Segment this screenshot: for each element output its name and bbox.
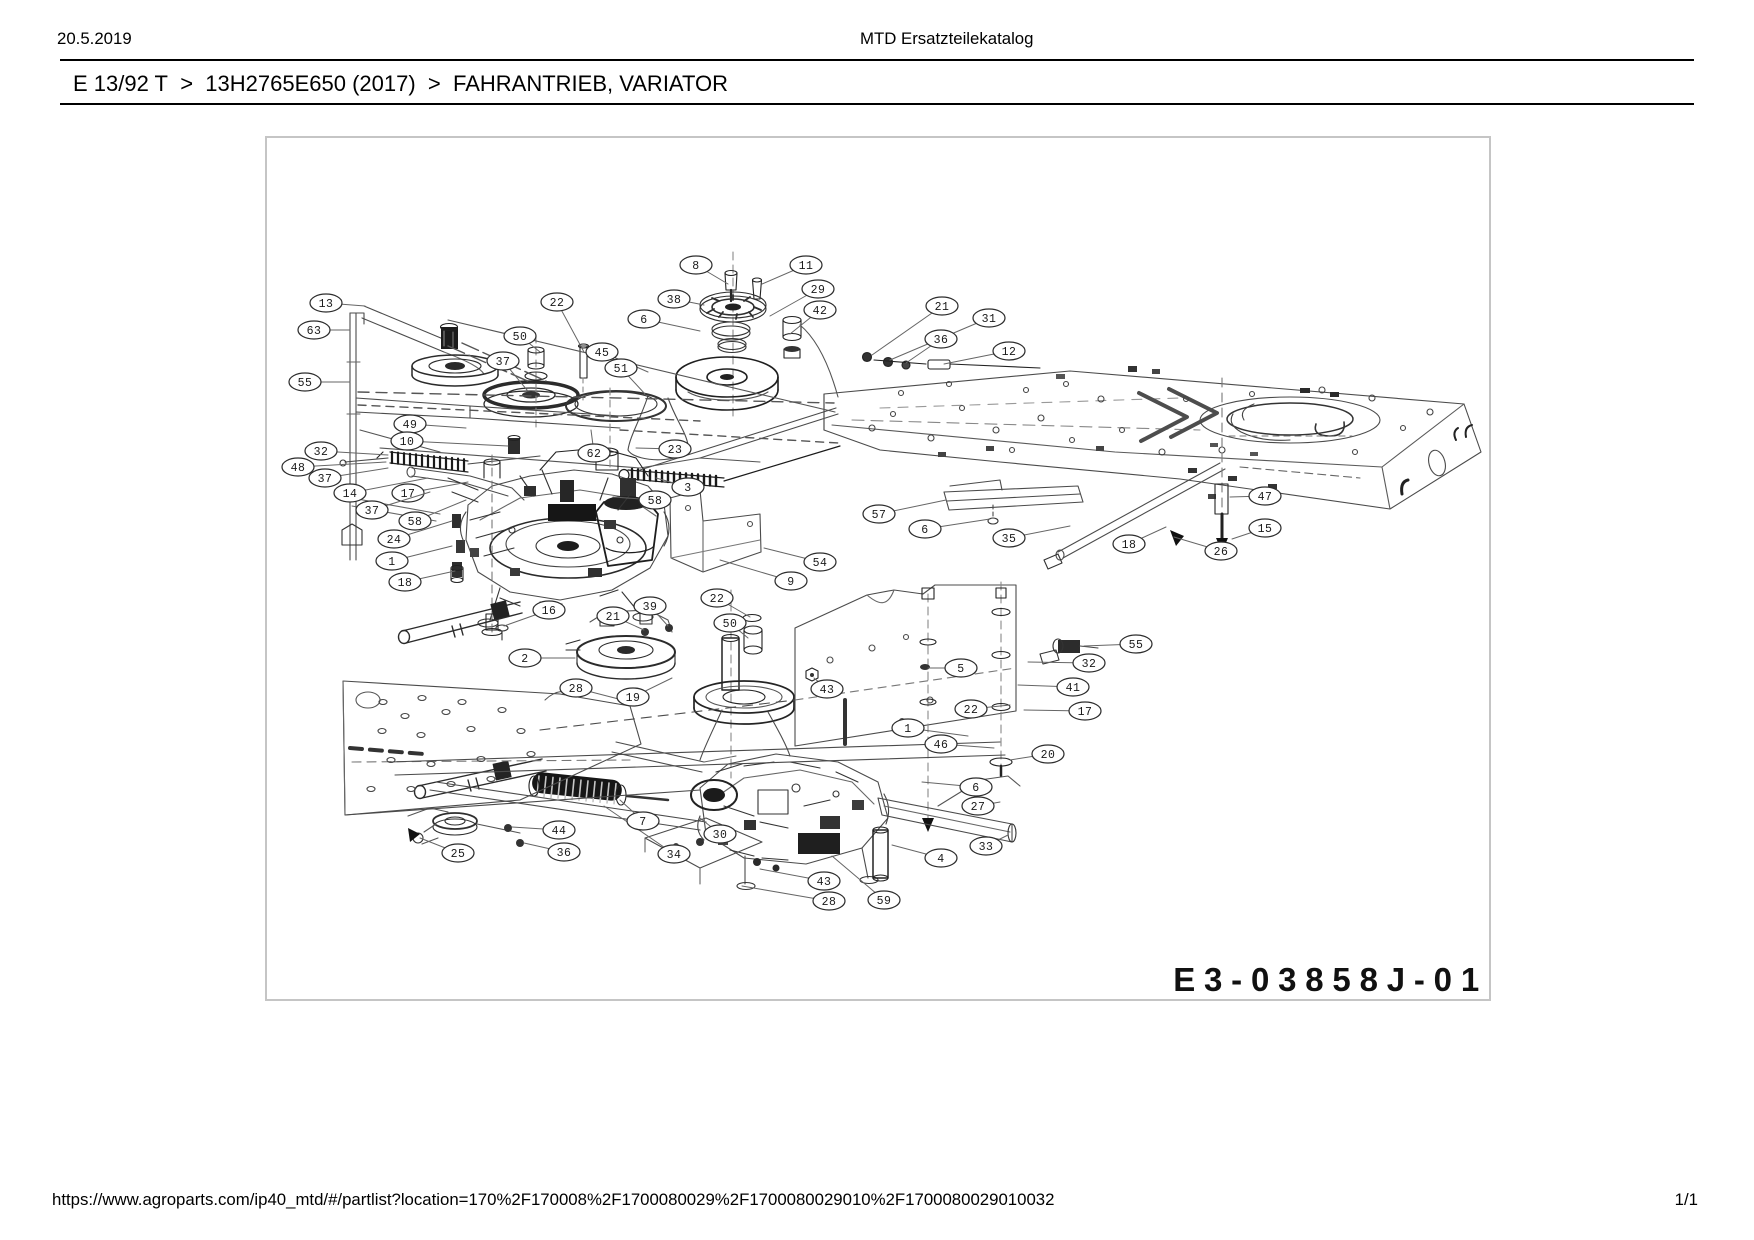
svg-text:42: 42 <box>813 305 828 318</box>
svg-text:22: 22 <box>964 704 979 717</box>
svg-text:26: 26 <box>1214 546 1229 559</box>
svg-text:6: 6 <box>640 314 647 327</box>
svg-text:18: 18 <box>398 577 413 590</box>
svg-text:50: 50 <box>723 618 738 631</box>
svg-text:50: 50 <box>513 331 528 344</box>
svg-text:30: 30 <box>713 829 728 842</box>
svg-text:11: 11 <box>799 260 814 273</box>
svg-text:37: 37 <box>365 505 380 518</box>
svg-text:12: 12 <box>1002 346 1017 359</box>
svg-text:59: 59 <box>877 895 892 908</box>
svg-text:63: 63 <box>307 325 322 338</box>
svg-text:15: 15 <box>1258 523 1273 536</box>
svg-text:51: 51 <box>614 363 629 376</box>
svg-text:1: 1 <box>904 723 911 736</box>
svg-text:2: 2 <box>521 653 528 666</box>
svg-text:45: 45 <box>595 347 610 360</box>
svg-text:49: 49 <box>403 419 418 432</box>
svg-text:14: 14 <box>343 488 358 501</box>
svg-text:39: 39 <box>643 601 658 614</box>
svg-text:19: 19 <box>626 692 641 705</box>
svg-text:32: 32 <box>1082 658 1097 671</box>
svg-text:47: 47 <box>1258 491 1273 504</box>
svg-text:38: 38 <box>667 294 682 307</box>
svg-text:24: 24 <box>387 534 402 547</box>
svg-text:62: 62 <box>587 448 602 461</box>
svg-text:5: 5 <box>957 663 964 676</box>
svg-text:44: 44 <box>552 825 567 838</box>
svg-text:18: 18 <box>1122 539 1137 552</box>
svg-text:43: 43 <box>820 684 835 697</box>
svg-text:22: 22 <box>550 297 565 310</box>
svg-text:41: 41 <box>1066 682 1081 695</box>
svg-text:58: 58 <box>408 516 423 529</box>
svg-text:13: 13 <box>319 298 334 311</box>
svg-text:55: 55 <box>298 377 313 390</box>
svg-text:48: 48 <box>291 462 306 475</box>
svg-text:23: 23 <box>668 444 683 457</box>
svg-text:21: 21 <box>935 301 950 314</box>
svg-text:58: 58 <box>648 495 663 508</box>
svg-text:17: 17 <box>1078 706 1093 719</box>
svg-text:22: 22 <box>710 593 725 606</box>
svg-text:29: 29 <box>811 284 826 297</box>
svg-text:57: 57 <box>872 509 887 522</box>
svg-text:35: 35 <box>1002 533 1017 546</box>
svg-text:36: 36 <box>934 334 949 347</box>
svg-text:54: 54 <box>813 557 828 570</box>
svg-text:33: 33 <box>979 841 994 854</box>
svg-text:27: 27 <box>971 801 986 814</box>
svg-text:36: 36 <box>557 847 572 860</box>
svg-text:3: 3 <box>684 482 691 495</box>
svg-text:21: 21 <box>606 611 621 624</box>
svg-text:20: 20 <box>1041 749 1056 762</box>
svg-text:25: 25 <box>451 848 466 861</box>
svg-text:34: 34 <box>667 849 682 862</box>
svg-text:9: 9 <box>787 576 794 589</box>
svg-text:28: 28 <box>822 896 837 909</box>
svg-text:4: 4 <box>937 853 944 866</box>
svg-text:37: 37 <box>496 356 511 369</box>
svg-text:43: 43 <box>817 876 832 889</box>
svg-text:8: 8 <box>692 260 699 273</box>
svg-text:6: 6 <box>972 782 979 795</box>
svg-text:32: 32 <box>314 446 329 459</box>
svg-text:16: 16 <box>542 605 557 618</box>
svg-text:55: 55 <box>1129 639 1144 652</box>
svg-text:7: 7 <box>639 816 646 829</box>
svg-text:10: 10 <box>400 436 415 449</box>
svg-text:6: 6 <box>921 524 928 537</box>
svg-text:37: 37 <box>318 473 333 486</box>
svg-text:28: 28 <box>569 683 584 696</box>
svg-text:1: 1 <box>388 556 395 569</box>
svg-text:31: 31 <box>982 313 997 326</box>
svg-text:46: 46 <box>934 739 949 752</box>
